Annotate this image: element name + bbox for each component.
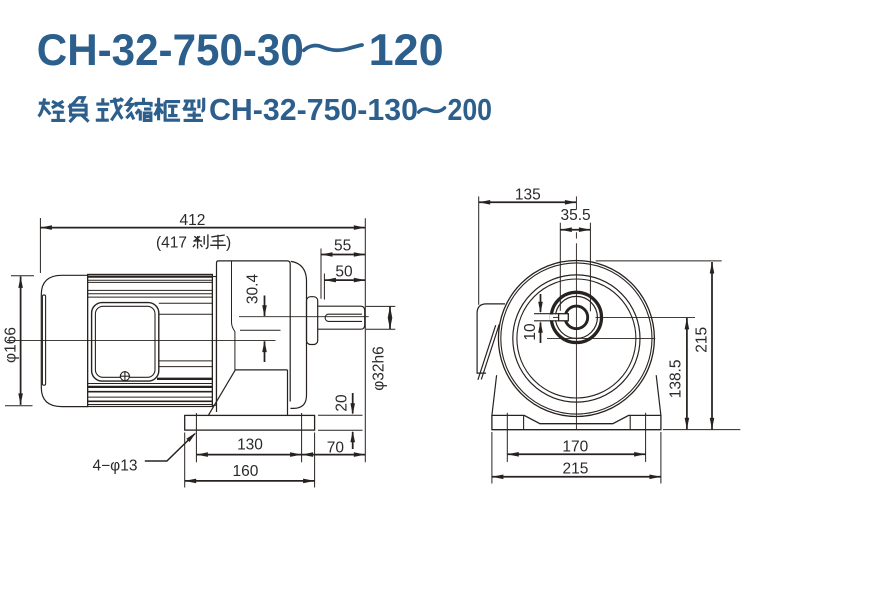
svg-text:CH-32-750-130: CH-32-750-130 [209,92,418,127]
svg-text:160: 160 [232,463,258,480]
svg-text:135: 135 [515,187,541,204]
svg-text:412: 412 [179,212,205,229]
svg-text:215: 215 [693,327,710,353]
svg-text:CH-32-750-30: CH-32-750-30 [37,26,304,75]
svg-text:170: 170 [562,439,588,456]
svg-text:φ166: φ166 [2,327,19,363]
svg-text:120: 120 [369,26,444,75]
svg-text:30.4: 30.4 [245,274,262,305]
svg-text:35.5: 35.5 [561,207,591,224]
svg-text:φ32h6: φ32h6 [370,346,387,391]
svg-text:138.5: 138.5 [667,360,684,399]
svg-text:50: 50 [335,263,353,280]
svg-text:200: 200 [448,92,493,127]
svg-text:10: 10 [522,323,539,341]
svg-text:70: 70 [327,439,345,456]
svg-text:(417: (417 [156,235,187,252]
svg-text:): ) [226,235,231,252]
svg-text:55: 55 [334,237,351,254]
svg-text:20: 20 [334,394,351,412]
svg-text:4−φ13: 4−φ13 [93,457,138,474]
svg-text:215: 215 [562,461,588,478]
svg-text:130: 130 [237,436,263,453]
